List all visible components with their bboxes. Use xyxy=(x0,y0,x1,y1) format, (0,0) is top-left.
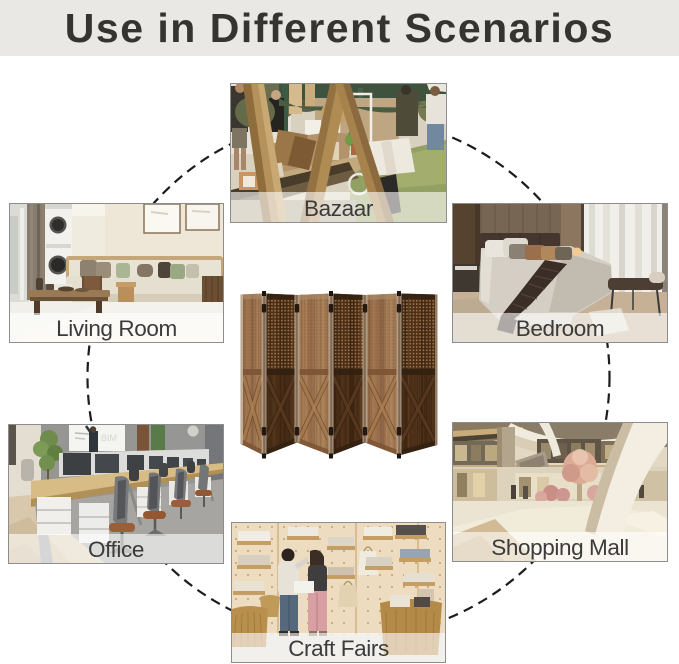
svg-text:BIM: BIM xyxy=(101,433,117,443)
